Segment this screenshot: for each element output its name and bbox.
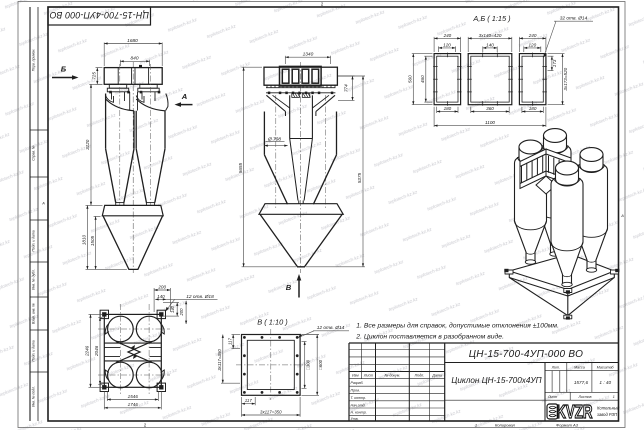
svg-text:В: В: [286, 283, 292, 292]
svg-text:117: 117: [245, 398, 253, 403]
svg-text:Лист: Лист: [547, 395, 557, 399]
svg-text:3х140=420: 3х140=420: [479, 33, 502, 38]
svg-text:140: 140: [157, 294, 165, 299]
svg-text:А: А: [41, 202, 45, 206]
svg-text:120: 120: [528, 42, 536, 47]
svg-text:1100: 1100: [485, 120, 495, 125]
svg-text:Дата: Дата: [431, 374, 441, 378]
svg-text:Инв. № подл.: Инв. № подл.: [32, 386, 36, 407]
svg-text:725: 725: [92, 72, 97, 80]
svg-text:200: 200: [179, 308, 184, 317]
svg-text:1 : 40: 1 : 40: [599, 380, 611, 385]
svg-text:Подп.: Подп.: [415, 374, 425, 378]
svg-text:3х173=520: 3х173=520: [563, 67, 568, 90]
svg-text:1505: 1505: [90, 235, 95, 246]
svg-text:173: 173: [552, 59, 557, 67]
svg-text:Листов: Листов: [577, 395, 591, 399]
svg-text:3120: 3120: [85, 139, 90, 150]
svg-text:Разраб.: Разраб.: [351, 381, 364, 385]
svg-text:□600: □600: [318, 359, 323, 370]
svg-text:Изм: Изм: [352, 374, 359, 378]
svg-text:120: 120: [443, 42, 451, 47]
svg-text:Подп. и дата: Подп. и дата: [32, 230, 36, 251]
svg-text:12 отв. Ø14: 12 отв. Ø14: [317, 325, 345, 331]
svg-text:А,Б ( 1:15 ): А,Б ( 1:15 ): [472, 14, 511, 23]
svg-text:№ докум.: № докум.: [384, 374, 400, 378]
svg-text:240: 240: [443, 33, 452, 38]
svg-text:240: 240: [528, 33, 537, 38]
svg-text:Циклон ЦН-15-700х4УП: Циклон ЦН-15-700х4УП: [451, 376, 541, 385]
svg-text:2046: 2046: [94, 345, 99, 357]
svg-text:1680: 1680: [127, 38, 138, 44]
svg-text:774: 774: [344, 84, 349, 92]
svg-text:Нач.отд.: Нач.отд.: [351, 403, 366, 407]
svg-text:Утв.: Утв.: [351, 417, 359, 421]
svg-text:180: 180: [444, 106, 452, 111]
svg-text:Подп. и дата: Подп. и дата: [32, 340, 36, 361]
svg-text:Инв. № дубл.: Инв. № дубл.: [32, 269, 36, 290]
svg-text:Формат А3: Формат А3: [556, 422, 579, 427]
svg-text:200: 200: [157, 284, 166, 289]
svg-text:Т. контр.: Т. контр.: [351, 396, 367, 400]
svg-text:1: 1: [613, 395, 615, 399]
svg-text:□300: □300: [306, 359, 311, 370]
svg-text:140: 140: [486, 42, 494, 47]
svg-text:180: 180: [529, 106, 537, 111]
svg-text:460: 460: [420, 75, 425, 83]
svg-text:Н. контр.: Н. контр.: [351, 411, 367, 415]
svg-text:140: 140: [170, 305, 175, 313]
svg-text:12 отв. Ø18: 12 отв. Ø18: [186, 294, 214, 300]
svg-text:1: 1: [475, 422, 477, 427]
svg-text:1746: 1746: [128, 402, 139, 407]
svg-text:1. Все размеры для справок, до: 1. Все размеры для справок, допустимые о…: [356, 321, 559, 329]
svg-text:560: 560: [408, 75, 413, 83]
svg-text:Справ. №: Справ. №: [32, 145, 36, 161]
svg-text:1340: 1340: [303, 52, 314, 58]
svg-text:Б: Б: [61, 65, 67, 74]
svg-text:А: А: [181, 92, 187, 101]
svg-text:2. Циклон поставляется в разоб: 2. Циклон поставляется в разобранном вид…: [355, 332, 504, 340]
svg-text:завод РЗП: завод РЗП: [596, 412, 617, 417]
svg-text:840: 840: [130, 56, 138, 62]
svg-text:ЦН-15-700-4УП-000 ВО: ЦН-15-700-4УП-000 ВО: [469, 349, 584, 360]
svg-text:32 отв. Ø14: 32 отв. Ø14: [560, 16, 588, 22]
svg-text:1546: 1546: [128, 394, 139, 399]
svg-text:Масштаб: Масштаб: [597, 365, 615, 369]
svg-text:В ( 1:10 ): В ( 1:10 ): [257, 318, 288, 327]
svg-text:Пров.: Пров.: [351, 389, 360, 393]
svg-text:KVZR: KVZR: [556, 402, 593, 423]
svg-text:Лист: Лист: [363, 374, 373, 378]
svg-text:Лит.: Лит.: [551, 365, 560, 369]
svg-text:Взам. инв. №: Взам. инв. №: [32, 303, 36, 324]
svg-text:117: 117: [227, 338, 232, 346]
svg-text:1810: 1810: [82, 234, 87, 245]
svg-text:5655: 5655: [238, 162, 243, 173]
svg-text:ЦН-15-700-4УП-000 ВО: ЦН-15-700-4УП-000 ВО: [49, 10, 148, 20]
svg-text:5375: 5375: [357, 172, 362, 183]
svg-text:3х117=350: 3х117=350: [217, 349, 222, 371]
svg-text:360: 360: [486, 106, 494, 111]
svg-text:Масса: Масса: [574, 365, 585, 369]
svg-text:1577,6: 1577,6: [574, 380, 589, 385]
svg-text:3х117=350: 3х117=350: [260, 409, 282, 414]
svg-text:2246: 2246: [85, 345, 90, 357]
svg-text:Котельный: Котельный: [597, 406, 620, 411]
svg-text:А: А: [620, 214, 624, 218]
svg-text:Перв. примен.: Перв. примен.: [32, 49, 36, 72]
svg-text:Копировал: Копировал: [495, 422, 516, 427]
